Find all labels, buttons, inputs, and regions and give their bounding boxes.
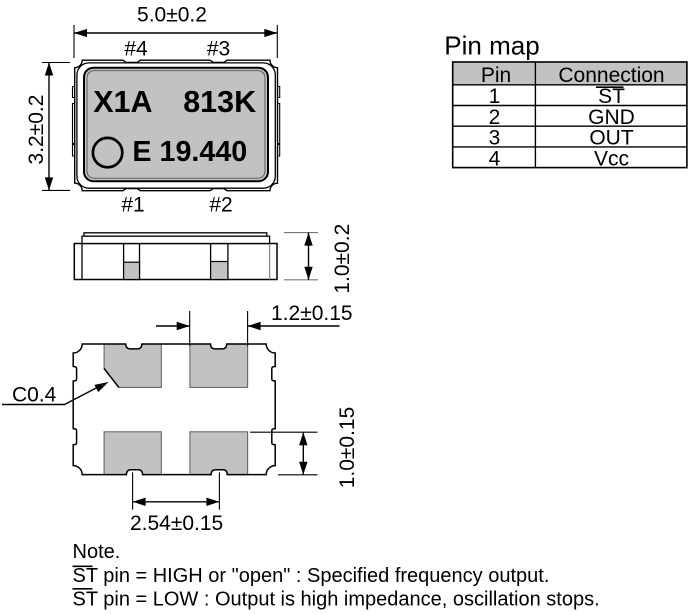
- svg-text:GND: GND: [588, 106, 635, 129]
- svg-text:1: 1: [489, 85, 501, 108]
- svg-text:3: 3: [489, 127, 501, 150]
- svg-text:ST pin = LOW : Output is high: ST pin = LOW : Output is high impedance,…: [73, 589, 600, 611]
- svg-text:5.0±0.2: 5.0±0.2: [137, 4, 207, 27]
- svg-text:X1A: X1A: [93, 85, 152, 119]
- svg-text:#1: #1: [121, 194, 144, 217]
- svg-text:C0.4: C0.4: [12, 384, 57, 407]
- svg-text:Note.: Note.: [73, 541, 121, 563]
- svg-text:4: 4: [489, 147, 501, 170]
- svg-text:Connection: Connection: [558, 64, 664, 87]
- svg-text:E 19.440: E 19.440: [132, 136, 247, 168]
- svg-text:1.0±0.15: 1.0±0.15: [336, 407, 359, 489]
- svg-text:ST: ST: [598, 85, 625, 108]
- svg-text:#2: #2: [209, 194, 232, 217]
- svg-text:813K: 813K: [183, 85, 256, 119]
- svg-text:3.2±0.2: 3.2±0.2: [25, 95, 48, 165]
- svg-text:2: 2: [489, 106, 501, 129]
- svg-text:1.2±0.15: 1.2±0.15: [271, 302, 353, 325]
- svg-text:#3: #3: [207, 38, 230, 61]
- svg-text:Pin: Pin: [481, 64, 511, 87]
- svg-text:Vcc: Vcc: [594, 147, 629, 170]
- svg-text:Pin map: Pin map: [444, 31, 539, 61]
- svg-text:OUT: OUT: [589, 127, 634, 150]
- svg-text:1.0±0.2: 1.0±0.2: [331, 224, 354, 294]
- svg-text:2.54±0.15: 2.54±0.15: [130, 512, 223, 535]
- svg-text:ST pin = HIGH or "open" : Spec: ST pin = HIGH or "open" : Specified freq…: [73, 565, 550, 587]
- svg-text:#4: #4: [124, 38, 148, 61]
